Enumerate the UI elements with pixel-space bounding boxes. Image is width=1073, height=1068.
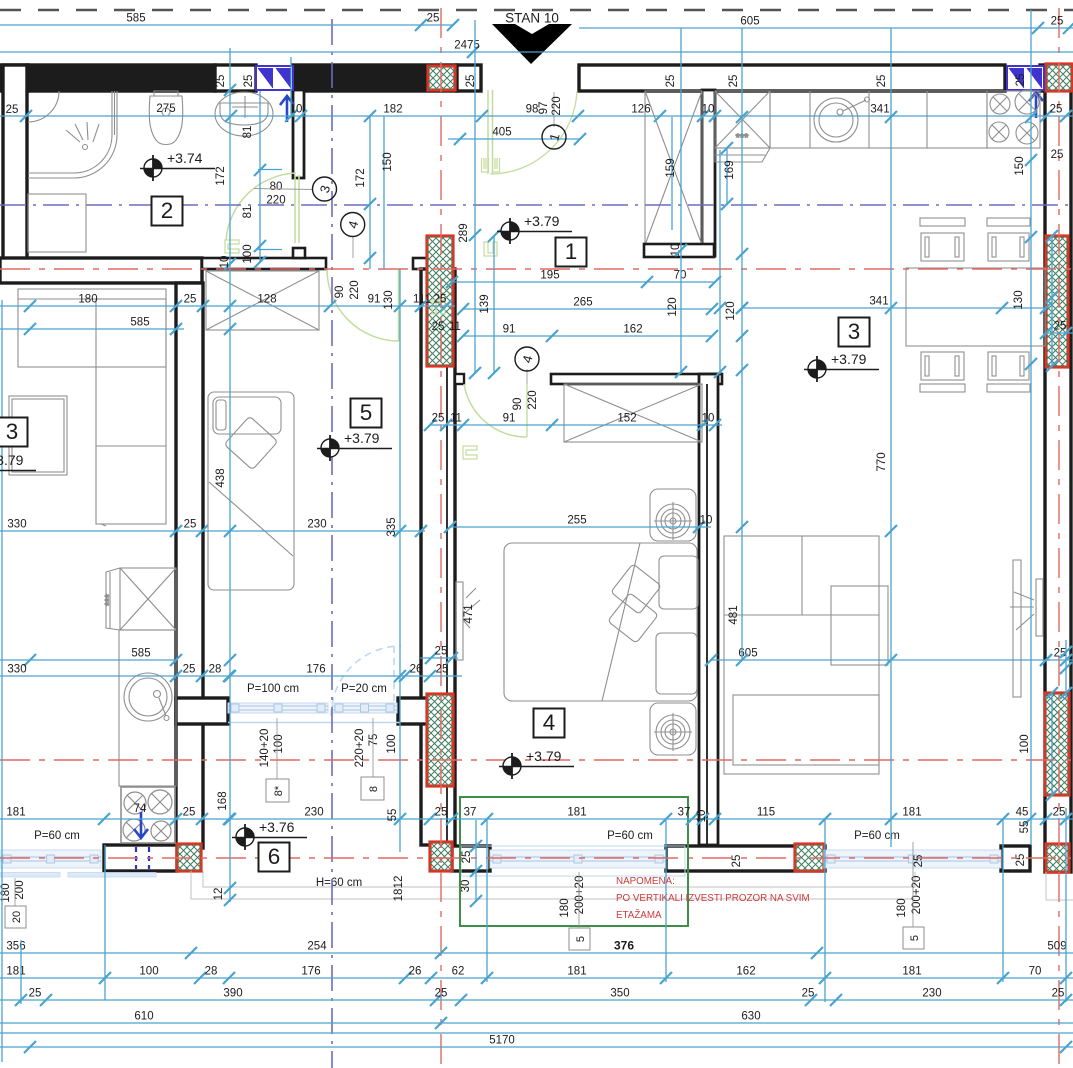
svg-text:12: 12 bbox=[393, 876, 405, 889]
svg-text:176: 176 bbox=[301, 966, 320, 978]
svg-text:25: 25 bbox=[385, 75, 397, 88]
svg-text:5: 5 bbox=[575, 936, 587, 942]
svg-text:25: 25 bbox=[1053, 807, 1066, 819]
svg-text:25: 25 bbox=[6, 104, 19, 116]
svg-text:11: 11 bbox=[450, 413, 462, 425]
svg-text:25: 25 bbox=[432, 413, 445, 425]
svg-text:55: 55 bbox=[1019, 821, 1031, 834]
svg-text:152: 152 bbox=[617, 413, 636, 425]
svg-text:100: 100 bbox=[139, 966, 158, 978]
svg-text:8*: 8* bbox=[273, 785, 285, 796]
svg-text:28: 28 bbox=[205, 966, 218, 978]
svg-text:585: 585 bbox=[131, 648, 150, 660]
svg-text:91: 91 bbox=[503, 413, 516, 425]
svg-text:18: 18 bbox=[393, 889, 405, 902]
svg-text:376: 376 bbox=[614, 939, 634, 953]
svg-text:128: 128 bbox=[257, 294, 276, 306]
svg-text:P=60 cm: P=60 cm bbox=[34, 830, 80, 842]
svg-text:+3.79: +3.79 bbox=[831, 351, 867, 367]
svg-text:ETAŽAMA: ETAŽAMA bbox=[616, 910, 662, 921]
svg-text:8: 8 bbox=[368, 786, 380, 792]
svg-text:275: 275 bbox=[156, 103, 175, 115]
svg-text:100: 100 bbox=[273, 734, 285, 753]
svg-text:220: 220 bbox=[349, 280, 361, 299]
svg-text:150: 150 bbox=[382, 152, 394, 171]
svg-text:220: 220 bbox=[551, 96, 563, 115]
svg-text:37: 37 bbox=[464, 807, 477, 819]
svg-text:25: 25 bbox=[728, 75, 740, 88]
svg-text:90: 90 bbox=[334, 286, 346, 299]
svg-text:172: 172 bbox=[355, 168, 367, 187]
svg-text:176: 176 bbox=[306, 664, 325, 676]
svg-text:770: 770 bbox=[876, 452, 888, 471]
svg-text:25: 25 bbox=[1015, 74, 1027, 87]
svg-text:81: 81 bbox=[242, 126, 254, 139]
svg-text:11: 11 bbox=[449, 321, 461, 333]
svg-text:130: 130 bbox=[1013, 290, 1025, 309]
svg-text:330: 330 bbox=[7, 519, 26, 531]
svg-text:438: 438 bbox=[215, 468, 227, 487]
svg-text:180: 180 bbox=[78, 294, 97, 306]
svg-text:***: *** bbox=[104, 594, 115, 606]
svg-text:26: 26 bbox=[409, 966, 422, 978]
svg-text:481: 481 bbox=[728, 605, 740, 624]
svg-text:25: 25 bbox=[1050, 104, 1063, 116]
svg-text:25: 25 bbox=[1051, 16, 1064, 28]
svg-text:585: 585 bbox=[126, 13, 145, 25]
svg-text:610: 610 bbox=[134, 1011, 153, 1023]
svg-text:25: 25 bbox=[461, 851, 473, 864]
svg-text:25: 25 bbox=[243, 75, 255, 88]
svg-text:25: 25 bbox=[29, 988, 42, 1000]
svg-text:25: 25 bbox=[427, 13, 440, 25]
svg-text:181: 181 bbox=[902, 966, 921, 978]
svg-text:350: 350 bbox=[610, 988, 629, 1000]
svg-text:265: 265 bbox=[573, 297, 592, 309]
svg-text:20: 20 bbox=[11, 911, 23, 923]
svg-text:181: 181 bbox=[567, 807, 586, 819]
svg-text:+3.79: +3.79 bbox=[524, 213, 560, 229]
svg-text:PO VERTIKALI IZVESTI PROZOR NA: PO VERTIKALI IZVESTI PROZOR NA SVIM bbox=[616, 893, 810, 904]
svg-text:5: 5 bbox=[909, 935, 921, 941]
svg-text:81: 81 bbox=[242, 206, 254, 219]
svg-text:25: 25 bbox=[435, 646, 448, 658]
svg-text:159: 159 bbox=[665, 158, 677, 177]
svg-text:25: 25 bbox=[183, 664, 196, 676]
svg-text:330: 330 bbox=[7, 664, 26, 676]
svg-text:182: 182 bbox=[383, 104, 402, 116]
svg-text:25: 25 bbox=[876, 75, 888, 88]
svg-text:98: 98 bbox=[526, 104, 539, 116]
svg-text:25: 25 bbox=[913, 855, 925, 868]
svg-text:10: 10 bbox=[696, 810, 708, 823]
svg-text:+3.74: +3.74 bbox=[167, 150, 203, 166]
svg-text:200: 200 bbox=[14, 880, 26, 899]
svg-text:80: 80 bbox=[270, 181, 283, 193]
svg-text:25: 25 bbox=[665, 75, 677, 88]
svg-text:55: 55 bbox=[387, 809, 399, 822]
svg-text:25: 25 bbox=[432, 321, 445, 333]
svg-text:25: 25 bbox=[1051, 149, 1064, 161]
svg-text:26: 26 bbox=[410, 664, 423, 676]
svg-text:3: 3 bbox=[6, 419, 19, 444]
svg-text:168: 168 bbox=[217, 791, 229, 810]
svg-text:181: 181 bbox=[567, 966, 586, 978]
svg-text:+3.76: +3.76 bbox=[259, 819, 295, 835]
svg-text:471: 471 bbox=[463, 604, 475, 623]
svg-text:130: 130 bbox=[383, 290, 395, 309]
svg-text:30: 30 bbox=[460, 880, 472, 893]
svg-text:25: 25 bbox=[184, 294, 197, 306]
svg-text:100: 100 bbox=[1019, 734, 1031, 753]
svg-text:405: 405 bbox=[492, 127, 511, 139]
svg-text:P=60 cm: P=60 cm bbox=[854, 830, 900, 842]
svg-text:200+20: 200+20 bbox=[574, 876, 586, 915]
svg-text:230: 230 bbox=[307, 519, 326, 531]
svg-text:25: 25 bbox=[435, 988, 448, 1000]
svg-text:180: 180 bbox=[559, 898, 571, 917]
svg-text:126: 126 bbox=[631, 104, 650, 116]
svg-text:6: 6 bbox=[268, 844, 281, 869]
svg-text:91: 91 bbox=[368, 294, 381, 306]
svg-text:181: 181 bbox=[6, 807, 25, 819]
svg-text:254: 254 bbox=[307, 941, 327, 953]
svg-text:2475: 2475 bbox=[454, 40, 480, 52]
svg-text:25: 25 bbox=[434, 294, 447, 306]
svg-text:605: 605 bbox=[738, 648, 757, 660]
svg-text:25: 25 bbox=[1054, 321, 1067, 333]
svg-text:230: 230 bbox=[304, 807, 323, 819]
svg-text:STAN 10: STAN 10 bbox=[505, 11, 559, 26]
svg-text:100: 100 bbox=[386, 734, 398, 753]
svg-text:140+20: 140+20 bbox=[259, 729, 271, 768]
svg-text:181: 181 bbox=[902, 807, 921, 819]
svg-text:3: 3 bbox=[848, 319, 861, 344]
svg-text:220: 220 bbox=[527, 390, 539, 409]
svg-text:25: 25 bbox=[731, 855, 743, 868]
svg-text:90: 90 bbox=[512, 398, 524, 411]
svg-text:62: 62 bbox=[452, 966, 465, 978]
svg-text:25: 25 bbox=[183, 807, 196, 819]
svg-text:605: 605 bbox=[740, 16, 759, 28]
svg-text:630: 630 bbox=[741, 1011, 760, 1023]
svg-text:10: 10 bbox=[219, 256, 231, 269]
svg-text:230: 230 bbox=[922, 988, 941, 1000]
svg-text:25: 25 bbox=[1015, 854, 1027, 867]
svg-text:5170: 5170 bbox=[489, 1035, 515, 1047]
svg-text:97: 97 bbox=[538, 102, 550, 115]
svg-text:25: 25 bbox=[215, 75, 227, 88]
svg-text:5: 5 bbox=[360, 400, 373, 425]
svg-text:70: 70 bbox=[1029, 966, 1042, 978]
svg-text:195: 195 bbox=[540, 270, 559, 282]
svg-text:180: 180 bbox=[896, 898, 908, 917]
svg-text:1: 1 bbox=[565, 239, 578, 264]
svg-text:P=20 cm: P=20 cm bbox=[341, 683, 387, 695]
svg-text:10: 10 bbox=[702, 413, 715, 425]
svg-text:341: 341 bbox=[870, 104, 889, 116]
svg-text:11: 11 bbox=[413, 294, 425, 306]
svg-text:220+20: 220+20 bbox=[354, 729, 366, 768]
svg-text:120: 120 bbox=[667, 297, 679, 316]
svg-text:P=60 cm: P=60 cm bbox=[607, 830, 653, 842]
svg-text:37: 37 bbox=[678, 807, 691, 819]
svg-text:25: 25 bbox=[1052, 988, 1065, 1000]
svg-text:289: 289 bbox=[458, 223, 470, 242]
svg-text:+3.79: +3.79 bbox=[0, 452, 24, 468]
svg-text:+3.79: +3.79 bbox=[526, 748, 562, 764]
svg-text:75: 75 bbox=[368, 734, 380, 747]
svg-text:509: 509 bbox=[1047, 941, 1066, 953]
svg-text:120: 120 bbox=[725, 301, 737, 320]
svg-text:25: 25 bbox=[184, 519, 197, 531]
svg-text:25: 25 bbox=[802, 988, 815, 1000]
svg-text:169: 169 bbox=[724, 160, 736, 179]
svg-text:341: 341 bbox=[869, 296, 888, 308]
svg-text:139: 139 bbox=[479, 294, 491, 313]
svg-text:P=100 cm: P=100 cm bbox=[247, 683, 299, 695]
svg-text:45: 45 bbox=[1016, 807, 1029, 819]
svg-text:4: 4 bbox=[543, 710, 556, 735]
svg-text:162: 162 bbox=[623, 324, 642, 336]
svg-text:12: 12 bbox=[213, 888, 225, 901]
svg-text:172: 172 bbox=[215, 166, 227, 185]
svg-text:585: 585 bbox=[130, 317, 149, 329]
svg-text:25: 25 bbox=[436, 664, 449, 676]
svg-text:70: 70 bbox=[674, 270, 687, 282]
svg-text:115: 115 bbox=[757, 807, 775, 819]
svg-text:10: 10 bbox=[700, 515, 713, 527]
svg-text:100: 100 bbox=[242, 244, 254, 263]
svg-text:255: 255 bbox=[567, 515, 586, 527]
svg-text:2: 2 bbox=[161, 198, 174, 223]
svg-text:+3.79: +3.79 bbox=[344, 430, 380, 446]
svg-text:390: 390 bbox=[223, 988, 242, 1000]
svg-text:10: 10 bbox=[702, 104, 715, 116]
svg-text:28: 28 bbox=[209, 664, 222, 676]
svg-text:162: 162 bbox=[736, 966, 755, 978]
svg-text:356: 356 bbox=[6, 941, 25, 953]
svg-text:25: 25 bbox=[435, 807, 448, 819]
svg-text:181: 181 bbox=[6, 966, 25, 978]
svg-text:150: 150 bbox=[1014, 156, 1026, 175]
svg-text:91: 91 bbox=[503, 324, 516, 336]
